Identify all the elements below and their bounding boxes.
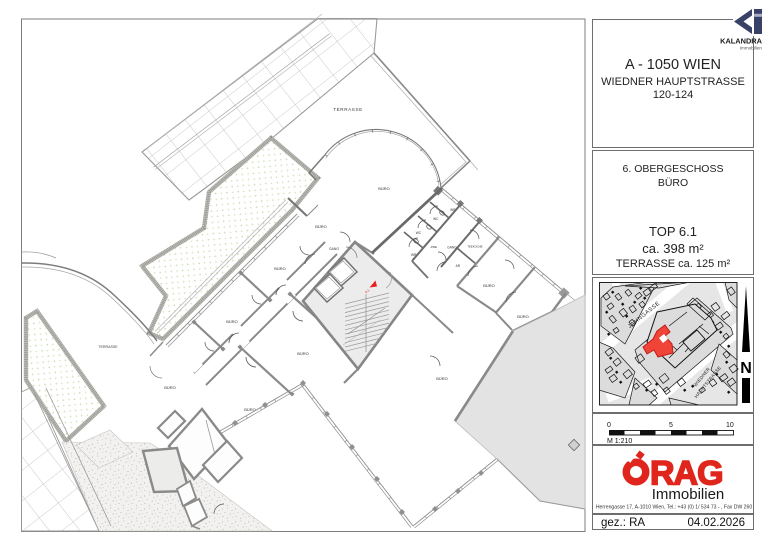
svg-text:BÜRO: BÜRO [274, 266, 286, 271]
svg-text:5: 5 [669, 422, 673, 429]
svg-text:KALANDRA: KALANDRA [720, 37, 763, 46]
svg-text:BÜRO: BÜRO [297, 351, 309, 356]
svg-text:BÜRO: BÜRO [226, 319, 238, 324]
svg-text:TERRASSE: TERRASSE [98, 345, 118, 349]
svg-text:10: 10 [726, 422, 734, 429]
svg-text:TERRASSE: TERRASSE [333, 107, 363, 112]
svg-text:BÜRO: BÜRO [517, 314, 529, 319]
svg-text:Immobilien: Immobilien [652, 486, 725, 503]
svg-text:WR: WR [450, 208, 456, 212]
svg-text:BÜRO: BÜRO [164, 385, 176, 390]
svg-text:AR: AR [456, 264, 461, 268]
svg-text:WC: WC [433, 217, 439, 221]
svg-text:GANG: GANG [329, 247, 339, 251]
svg-text:BÜRO: BÜRO [483, 283, 495, 288]
svg-text:N: N [740, 360, 752, 377]
svg-text:M 1:210: M 1:210 [607, 438, 632, 445]
svg-text:WC: WC [416, 231, 422, 235]
svg-text:GANG: GANG [447, 246, 457, 250]
svg-text:WR: WR [411, 253, 417, 257]
svg-text:BÜRO: BÜRO [378, 186, 390, 191]
svg-text:-PRE: -PRE [430, 245, 437, 249]
svg-text:0: 0 [607, 422, 611, 429]
svg-text:BÜRO: BÜRO [315, 224, 327, 229]
svg-text:BÜRO: BÜRO [436, 376, 448, 381]
svg-text:TEEKÜCHE: TEEKÜCHE [467, 245, 482, 249]
svg-text:Herrengasse 17, A-1010 Wien, T: Herrengasse 17, A-1010 Wien, Tel.: +43 (… [596, 505, 753, 511]
svg-text:Immobilien: Immobilien [740, 46, 763, 51]
